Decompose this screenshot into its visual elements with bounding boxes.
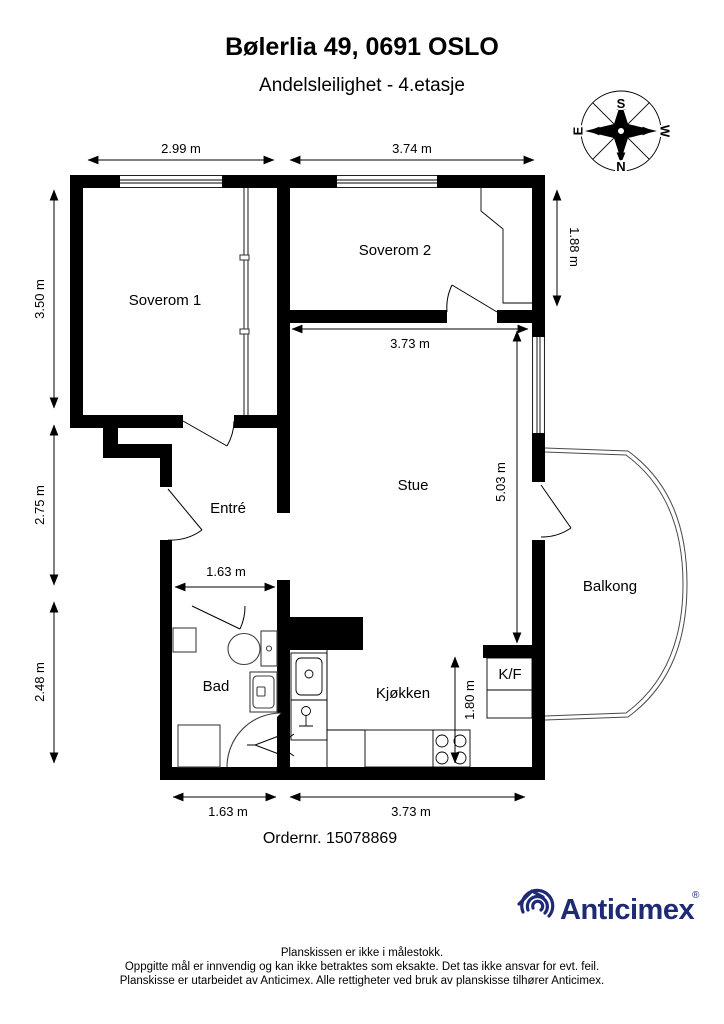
window-stue: [532, 337, 545, 433]
kitchen-shaft: [282, 617, 363, 650]
closet-soverom2: [481, 188, 532, 303]
dim-stue-width: 3.73 m: [390, 336, 430, 351]
shower-curtain: [227, 713, 281, 767]
dim-top-soverom1: 2.99 m: [161, 141, 201, 156]
page-subtitle: Andelsleilighet - 4.etasje: [259, 75, 465, 96]
window-soverom1: [120, 175, 222, 188]
anticimex-logo: Anticimex ®: [519, 890, 700, 926]
compass-rose: S N E W: [571, 91, 673, 174]
wardrobe-soverom1: [240, 188, 249, 415]
window-soverom2: [337, 175, 437, 188]
page-title: Bølerlia 49, 0691 OSLO: [225, 33, 499, 61]
stove-burners: [436, 735, 466, 764]
door-entrance: [168, 489, 202, 540]
door-gap-balcony: [532, 482, 545, 540]
room-label-kjokken: Kjøkken: [376, 685, 430, 702]
dim-left-entre: 2.75 m: [32, 485, 47, 525]
openings: [120, 175, 545, 612]
dim-top-soverom2: 3.74 m: [392, 141, 432, 156]
dishwasher: [291, 700, 327, 740]
dim-bottom-bad: 1.63 m: [208, 804, 248, 819]
wall-soverom1-soverom2: [277, 175, 290, 428]
dim-kjokken-depth: 1.80 m: [462, 680, 477, 720]
room-label-kf: K/F: [498, 666, 521, 683]
compass-letter-east: E: [571, 126, 586, 135]
wall-right: [532, 175, 545, 780]
kitchen-sink: [291, 653, 327, 700]
washing-machine-small: [173, 628, 196, 652]
room-label-balkong: Balkong: [583, 578, 637, 595]
dimension-lines: [54, 160, 557, 797]
room-label-stue: Stue: [398, 477, 429, 494]
toilet: [228, 631, 277, 666]
wall-left-upper: [70, 175, 83, 428]
room-label-soverom2: Soverom 2: [359, 242, 432, 259]
kitchen-counter-edge: [327, 650, 365, 767]
wall-kf: [483, 645, 532, 658]
footer-line-2: Oppgitte mål er innvendig og kan ikke be…: [125, 961, 599, 973]
footer-line-3: Planskisse er utarbeidet av Anticimex. A…: [120, 975, 605, 987]
floorplan-page: Bølerlia 49, 0691 OSLO Andelsleilighet -…: [0, 0, 724, 1024]
kitchen-counter: [365, 730, 470, 767]
footer-line-1: Planskissen er ikke i målestokk.: [281, 947, 443, 959]
dim-entre-width: 1.63 m: [206, 564, 246, 579]
logo-registered: ®: [692, 890, 700, 901]
door-gap-entrance: [160, 487, 172, 540]
logo-swirl-icon: [519, 890, 553, 916]
logo-text: Anticimex: [560, 894, 694, 926]
door-balcony: [541, 485, 571, 537]
room-label-entre: Entré: [210, 500, 246, 517]
wall-entre-stue: [277, 428, 290, 513]
door-gap-soverom1: [183, 415, 234, 428]
wall-soverom1-bottom: [70, 415, 290, 428]
compass-letter-north: N: [616, 159, 625, 174]
wall-bottom: [160, 767, 545, 780]
compass-letter-south: S: [617, 96, 626, 111]
door-soverom2: [447, 285, 497, 312]
dim-stue-depth: 5.03 m: [493, 462, 508, 502]
dim-left-soverom1: 3.50 m: [32, 279, 47, 319]
room-label-soverom1: Soverom 1: [129, 292, 202, 309]
dim-right-soverom2: 1.88 m: [567, 227, 582, 267]
dim-bottom-kjokken: 3.73 m: [391, 804, 431, 819]
room-label-bad: Bad: [203, 678, 230, 695]
floorplan-drawing: Bølerlia 49, 0691 OSLO Andelsleilighet -…: [0, 0, 724, 1024]
footer: Planskissen er ikke i målestokk. Oppgitt…: [120, 947, 605, 987]
washing-machine-large: [178, 725, 220, 767]
vanity-sink: [250, 672, 277, 712]
door-gap-soverom2: [447, 310, 497, 323]
dim-left-bad: 2.48 m: [32, 662, 47, 702]
compass-hub: [618, 128, 625, 135]
dimension-labels: 2.99 m 3.74 m 3.50 m 2.75 m 2.48 m 1.88 …: [32, 141, 582, 819]
compass-letter-west: W: [658, 125, 673, 138]
order-number: Ordernr. 15078869: [263, 830, 397, 847]
